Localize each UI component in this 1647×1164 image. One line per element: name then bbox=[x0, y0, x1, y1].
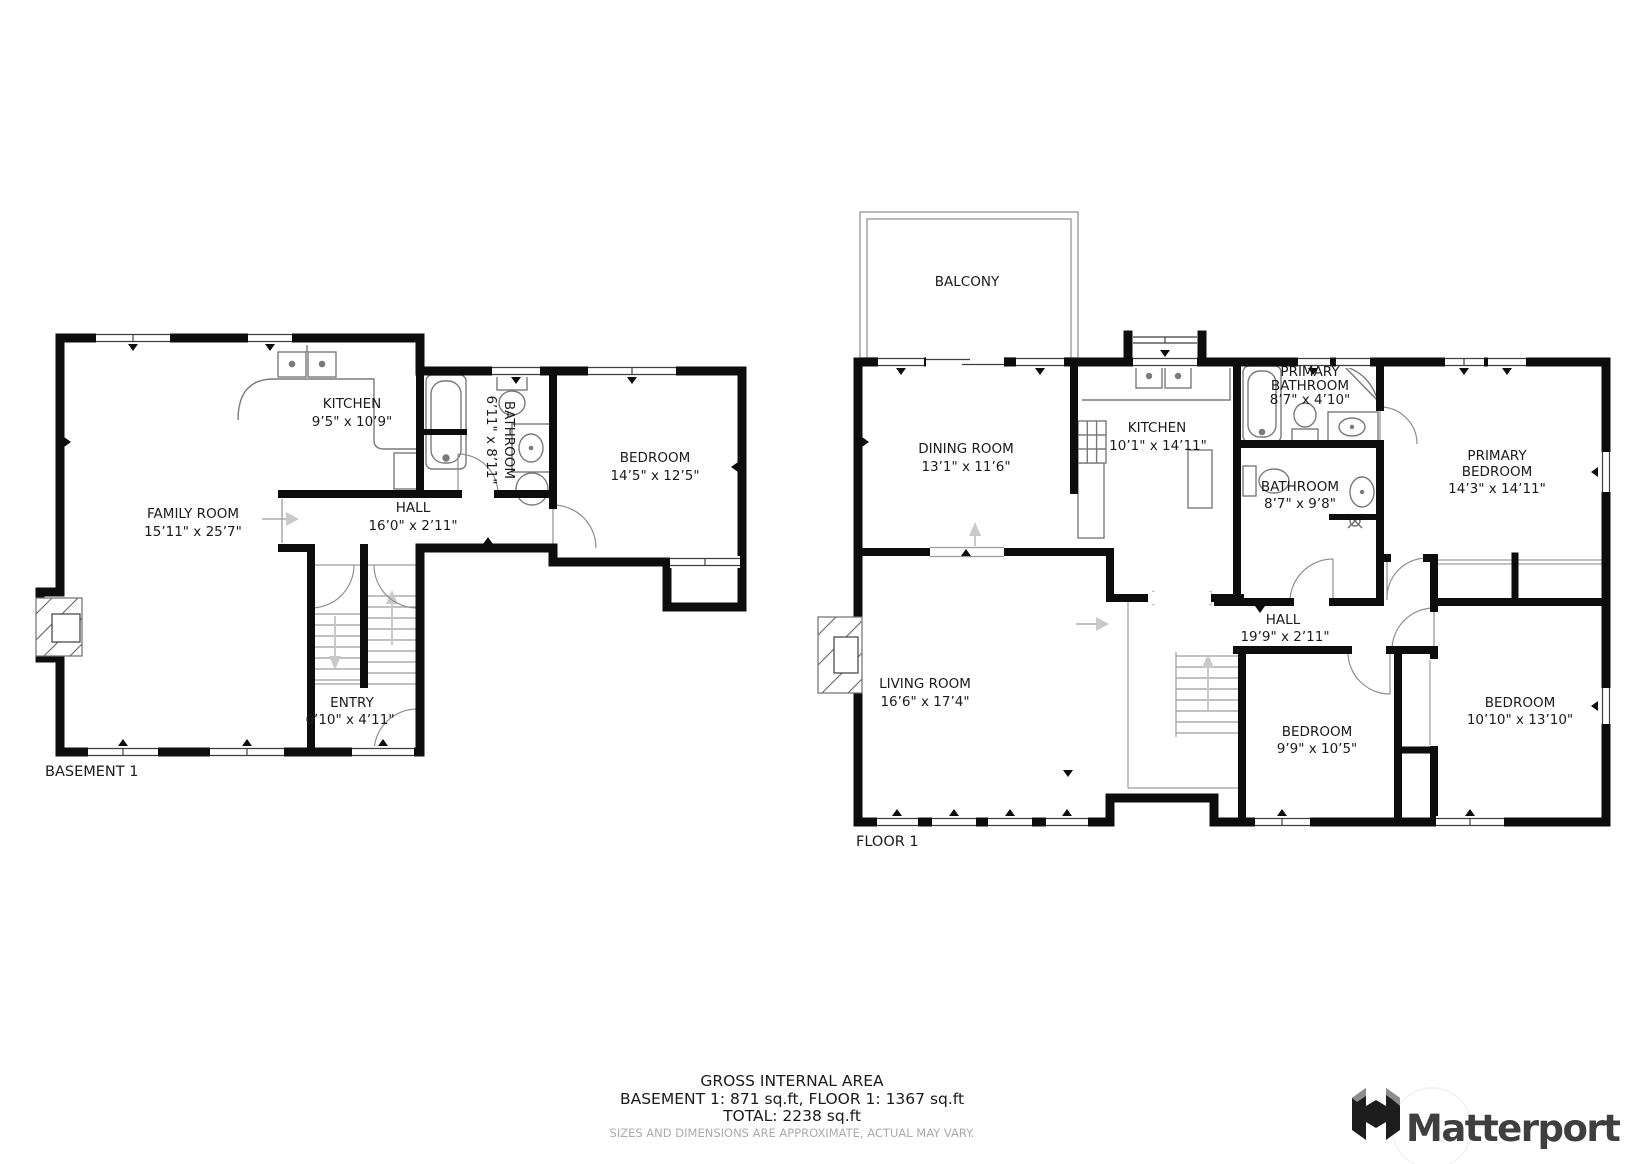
matterport-logo-text: Matterport bbox=[1406, 1107, 1620, 1150]
floor1-stairs bbox=[1076, 602, 1240, 788]
toilet-icon bbox=[1292, 429, 1318, 441]
basement-plan: FAMILY ROOM 15’11" x 25’7" KITCHEN 9’5" … bbox=[36, 332, 742, 780]
fireplace-icon bbox=[36, 598, 82, 656]
room-label-balcony: BALCONY bbox=[935, 274, 1000, 290]
room-label-entry: ENTRY bbox=[330, 695, 374, 711]
room-dims-bathroom: 6’11" x 8’11" bbox=[483, 395, 499, 484]
room-label-primary-bedroom-2: BEDROOM bbox=[1462, 464, 1532, 480]
room-dims-bathroom-f1: 8’7" x 9’8" bbox=[1264, 496, 1336, 512]
floorplan-page: FAMILY ROOM 15’11" x 25’7" KITCHEN 9’5" … bbox=[0, 0, 1647, 1164]
room-dims-hall: 16’0" x 2’11" bbox=[368, 518, 457, 534]
room-label-family-room: FAMILY ROOM bbox=[147, 506, 239, 522]
floorplan-canvas: FAMILY ROOM 15’11" x 25’7" KITCHEN 9’5" … bbox=[0, 0, 1647, 1164]
basement-stair-arrows bbox=[286, 512, 398, 670]
room-dims-kitchen: 9’5" x 10’9" bbox=[312, 414, 393, 430]
room-dims-family-room: 15’11" x 25’7" bbox=[144, 524, 242, 540]
basement-wall-markers bbox=[64, 344, 738, 746]
basement-walls bbox=[40, 338, 742, 752]
room-label-bathroom: BATHROOM bbox=[501, 401, 517, 479]
room-label-bedroom-3: BEDROOM bbox=[1485, 695, 1555, 711]
room-label-dining-room: DINING ROOM bbox=[918, 441, 1014, 457]
room-label-hall-f1: HALL bbox=[1266, 612, 1301, 628]
room-dims-primary-bathroom: 8’7" x 4’10" bbox=[1270, 392, 1351, 408]
room-label-primary-bedroom-1: PRIMARY bbox=[1467, 448, 1527, 464]
room-label-bedroom-2: BEDROOM bbox=[1282, 724, 1352, 740]
basement-floor-label: BASEMENT 1 bbox=[45, 764, 138, 780]
summary-areas: BASEMENT 1: 871 sq.ft, FLOOR 1: 1367 sq.… bbox=[620, 1090, 964, 1108]
room-dims-kitchen-f1: 10’1" x 14’11" bbox=[1109, 438, 1207, 454]
room-dims-hall-f1: 19’9" x 2’11" bbox=[1240, 629, 1329, 645]
room-dims-bedroom: 14’5" x 12’5" bbox=[610, 468, 699, 484]
summary-total: TOTAL: 2238 sq.ft bbox=[722, 1107, 861, 1125]
room-dims-living-room: 16’6" x 17’4" bbox=[880, 694, 969, 710]
fireplace-icon bbox=[818, 617, 862, 693]
sink-icon bbox=[516, 473, 548, 505]
stove-icon bbox=[1078, 421, 1106, 463]
room-label-kitchen: KITCHEN bbox=[323, 396, 382, 412]
room-label-hall: HALL bbox=[396, 500, 431, 516]
room-label-living-room: LIVING ROOM bbox=[879, 676, 971, 692]
floor1-walls bbox=[858, 335, 1606, 822]
room-dims-bedroom-2: 9’9" x 10’5" bbox=[1277, 741, 1358, 757]
summary-disclaimer: SIZES AND DIMENSIONS ARE APPROXIMATE, AC… bbox=[610, 1126, 975, 1140]
room-label-bathroom-f1: BATHROOM bbox=[1261, 479, 1339, 495]
floor1-wall-markers bbox=[862, 350, 1598, 816]
floor1-floor-label: FLOOR 1 bbox=[856, 834, 919, 850]
room-label-kitchen-f1: KITCHEN bbox=[1128, 420, 1187, 436]
floor1-plan: BALCONY DINING ROOM 13’1" x 11’6" KITCHE… bbox=[818, 212, 1612, 850]
room-dims-bedroom-3: 10’10" x 13’10" bbox=[1467, 712, 1573, 728]
matterport-logo-icon bbox=[1352, 1088, 1400, 1140]
room-dims-dining-room: 13’1" x 11’6" bbox=[921, 459, 1010, 475]
basement-windows bbox=[88, 332, 740, 758]
matterport-logo: Matterport bbox=[1352, 1088, 1620, 1164]
room-label-bedroom: BEDROOM bbox=[620, 450, 690, 466]
area-summary: GROSS INTERNAL AREA BASEMENT 1: 871 sq.f… bbox=[610, 1072, 975, 1140]
room-dims-primary-bedroom: 14’3" x 14’11" bbox=[1448, 481, 1546, 497]
summary-title: GROSS INTERNAL AREA bbox=[700, 1072, 884, 1090]
toilet-icon bbox=[1243, 466, 1256, 496]
room-dims-entry: 6’10" x 4’11" bbox=[305, 712, 394, 728]
